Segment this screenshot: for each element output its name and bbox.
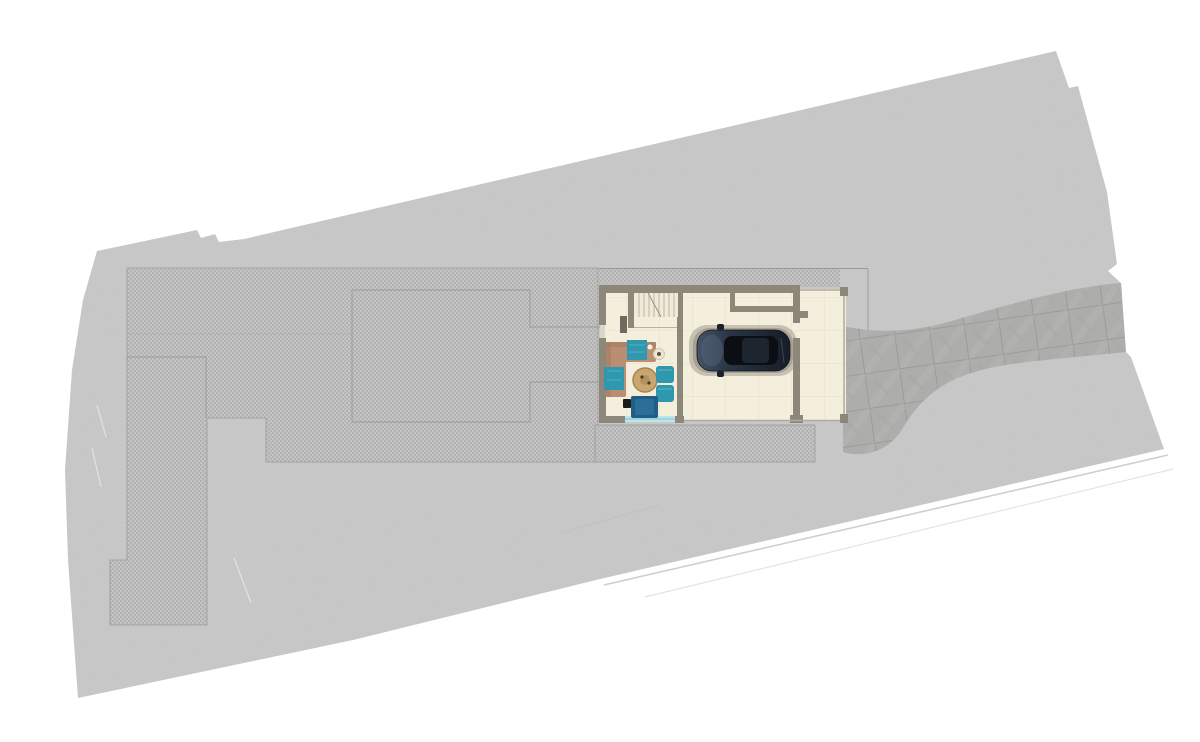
car-mirror-top — [717, 324, 724, 330]
black-item — [623, 399, 631, 408]
site-plan-drawing — [0, 0, 1200, 742]
house — [599, 285, 848, 423]
porch-post-top — [840, 287, 848, 296]
car-mirror-bottom — [717, 371, 724, 377]
site-plan-canvas — [0, 0, 1200, 742]
table-decor-2 — [647, 381, 650, 384]
car — [689, 324, 797, 377]
garage-niche-stub — [730, 293, 735, 311]
side-table-decor — [657, 352, 661, 356]
wall-left-upper — [599, 285, 606, 325]
fine-paver-patio — [595, 425, 815, 462]
sofa-teal-throw-left — [604, 367, 624, 390]
wall-bottom-left — [599, 416, 625, 423]
sofa-teal-throw-top — [627, 340, 647, 360]
wall-right-upper — [793, 289, 800, 323]
wall-pier-cabinet — [620, 316, 627, 333]
table-decor-1 — [640, 375, 643, 378]
wall-corner-piece — [790, 415, 803, 423]
lounge-rug-inner — [635, 399, 654, 415]
car-hood-highlight — [701, 335, 723, 367]
pouf-2 — [656, 385, 674, 402]
wall-stair-side — [628, 291, 634, 328]
car-roof — [742, 338, 769, 363]
stair-flight — [634, 293, 678, 317]
pouf-1 — [656, 366, 674, 383]
fine-paver-strip-above-house — [599, 268, 840, 287]
garage-niche-bar — [730, 306, 793, 312]
window-gap-left-wall — [600, 325, 605, 338]
wall-door-return — [799, 311, 808, 318]
small-vase — [648, 345, 653, 350]
porch-post-bottom — [840, 414, 848, 423]
